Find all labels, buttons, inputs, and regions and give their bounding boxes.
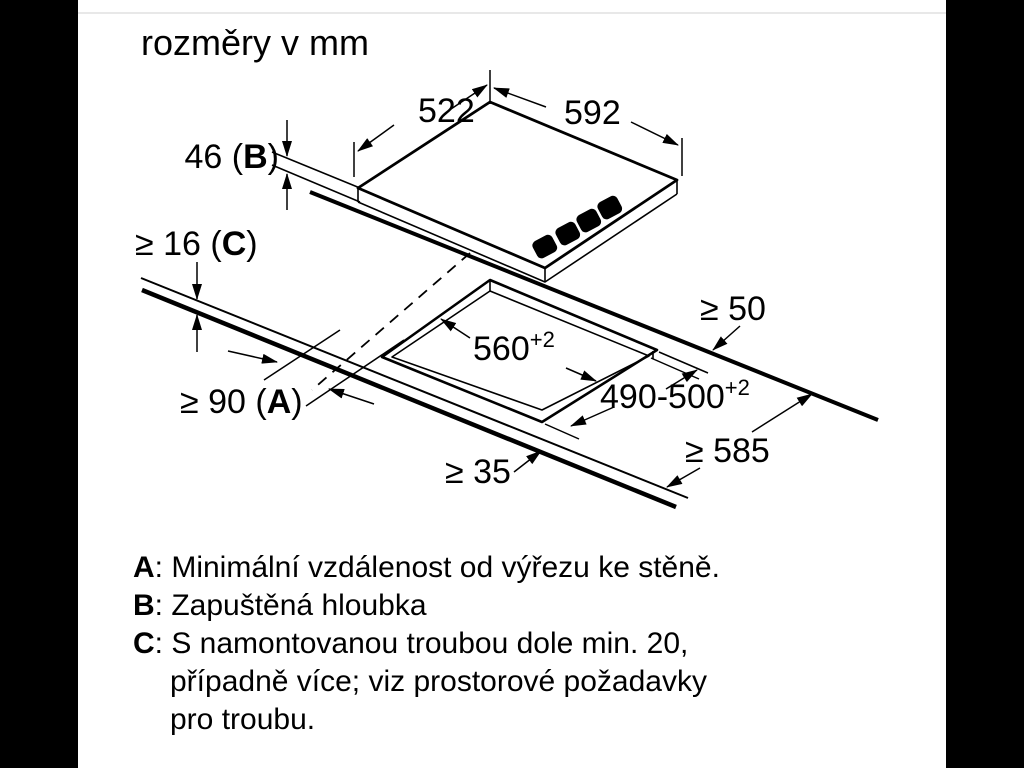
legend-text-B: : Zapuštěná hloubka xyxy=(155,589,427,622)
label-cutout-width-tolerance: +2 xyxy=(530,327,555,352)
label-recess-key: B xyxy=(243,138,268,176)
label-worktop-depth-585: ≥ 585 xyxy=(685,432,770,470)
label-cutout-depth-tolerance: +2 xyxy=(725,375,750,400)
legend-key-A: A xyxy=(133,551,155,584)
label-cutout-depth-base: 490-500 xyxy=(600,378,725,416)
legend-text-C-line3: pro troubu. xyxy=(170,703,315,737)
label-recess-46-B: 46 (B) xyxy=(185,138,279,176)
label-wall-suffix: ) xyxy=(291,383,302,421)
legend-item-C: C: S namontovanou troubou dole min. 20, xyxy=(133,627,688,661)
manual-page: rozměry v mm xyxy=(78,0,946,768)
label-cutout-width-base: 560 xyxy=(473,330,530,368)
legend-item-A: A: Minimální vzdálenost od výřezu ke stě… xyxy=(133,551,720,585)
label-cutout-depth-490-500: 490-500+2 xyxy=(600,375,750,416)
label-width-522: 522 xyxy=(418,92,475,130)
screenshot-root: { "page": { "background": "#000000", "pa… xyxy=(0,0,1024,768)
cooktop-drawing xyxy=(358,102,677,282)
legend-key-B: B xyxy=(133,589,155,622)
label-clearance-prefix: ≥ 16 ( xyxy=(135,225,222,263)
legend-text-C: : S namontovanou troubou dole min. 20, xyxy=(155,627,689,660)
label-depth-592: 592 xyxy=(564,94,621,132)
legend-text-C-line2: případně více; viz prostorové požadavky xyxy=(170,665,707,699)
label-wall-90-A: ≥ 90 (A) xyxy=(180,383,303,421)
legend-key-C: C xyxy=(133,627,155,660)
label-clearance-suffix: ) xyxy=(246,225,257,263)
label-recess-prefix: 46 ( xyxy=(185,138,244,176)
label-rear-gap-50: ≥ 50 xyxy=(700,290,766,328)
label-wall-prefix: ≥ 90 ( xyxy=(180,383,267,421)
label-wall-key: A xyxy=(267,383,292,421)
label-front-gap-35: ≥ 35 xyxy=(445,453,511,491)
legend-item-B: B: Zapuštěná hloubka xyxy=(133,589,427,623)
legend-text-A: : Minimální vzdálenost od výřezu ke stěn… xyxy=(155,551,720,584)
label-clearance-key: C xyxy=(222,225,247,263)
label-recess-suffix: ) xyxy=(268,138,279,176)
label-clearance-16-C: ≥ 16 (C) xyxy=(135,225,258,263)
